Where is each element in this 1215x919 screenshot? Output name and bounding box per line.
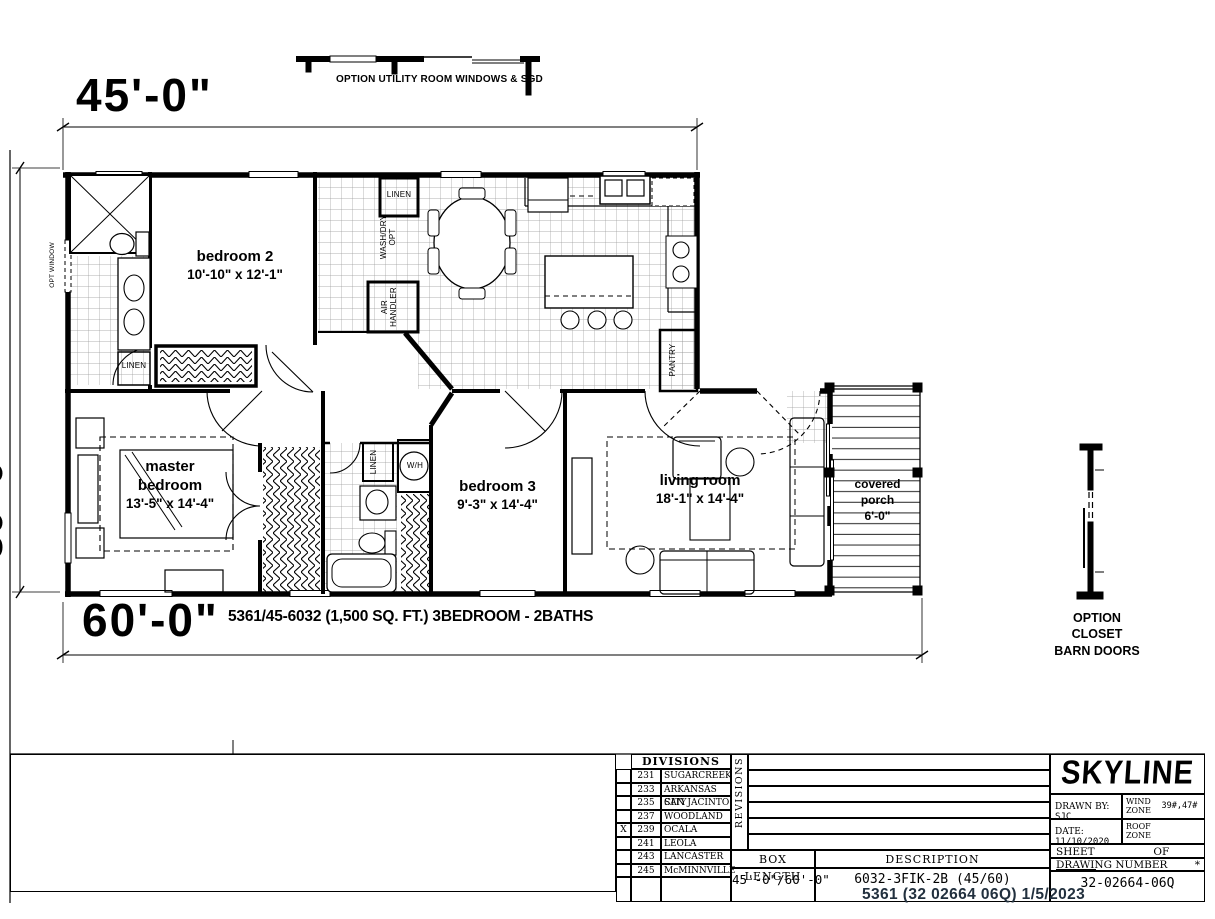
wind-zone-cell: WIND ZONE 39#,47# [1122,794,1205,819]
side-table [626,546,654,574]
division-name: OCALA [661,823,731,837]
dining-table [434,197,510,289]
sliding-door-pane [827,424,830,496]
drawn-by-cell: DRAWN BY: SJC [1050,794,1122,819]
bedroom3-door-arc [505,391,562,448]
porch-post [913,468,922,477]
dresser [165,570,223,592]
toilet-tank [136,232,149,256]
bedroom2-door-arc [266,345,313,392]
division-mark-empty [616,877,631,902]
brand-logo-cell: SKYLINE [1050,754,1205,794]
date-cell: DATE: 11/10/2020 [1050,819,1122,844]
division-name: WOODLAND [661,810,731,824]
vanity [118,258,150,350]
plan-title: 5361/45-6032 (1,500 SQ. FT.) 3BEDROOM - … [228,608,593,626]
dining-chair [505,248,516,274]
drawing-number-header: DRAWING NUMBER * [1050,858,1205,871]
stool [561,311,579,329]
dimension-60ft: 60'-0" [82,597,219,643]
stool [588,311,606,329]
porch-post [913,383,922,392]
division-mark [616,783,631,797]
divisions-header: DIVISIONS [631,754,731,769]
room-label-bedroom2: bedroom 2 10'-10" x 12'-1" [160,248,310,284]
division-name: McMINNVILLE [661,864,731,878]
division-code: 241 [631,837,661,851]
linen-label-hallbath: LINEN [370,422,386,502]
pantry-label: PANTRY [669,320,687,400]
description-header: DESCRIPTION [815,850,1050,868]
division-name: ARKANSAS CITY [661,783,731,797]
porch-post [913,586,922,595]
master-closet-hangers [263,447,320,592]
sink [124,309,144,335]
drawing-sheet: 45'-0" 60'-0" 5361/45-6032 (1,500 SQ. FT… [0,0,1215,919]
toilet [359,533,385,553]
dining-chair [459,188,485,199]
stool [614,311,632,329]
burner [627,180,644,196]
kitchen-island [545,256,633,308]
room-label-porch: covered porch 6'-0" [845,476,910,525]
division-mark [616,810,631,824]
bedroom3-closet-hangers [401,494,429,592]
porch-post [825,586,834,595]
division-code-empty [631,877,661,902]
division-code: 237 [631,810,661,824]
room-label-bedroom3: bedroom 3 9'-3" x 14'-4" [430,478,565,514]
toilet-tank [385,531,396,555]
bathtub-inner [332,559,391,587]
division-name: LEOLA [661,837,731,851]
opt-window-label: OPT WINDOW [49,225,63,305]
division-mark [616,864,631,878]
porch-post [825,468,834,477]
division-mark [616,769,631,783]
sink-bowl [673,266,689,282]
division-mark [616,796,631,810]
toilet [110,234,134,255]
linen-label-bath2: LINEN [118,362,150,371]
nightstand [76,418,104,448]
left-dimension-clipped: 30'-0" [0,440,36,615]
division-code: 235 [631,796,661,810]
room-label-master: master bedroom 13'-5" x 14'-4" [95,458,245,512]
revision-stamp: 5361 (32 02664 06Q) 1/5/2023 [862,886,1085,904]
sheet-of-cell: SHEET OF [1050,844,1205,858]
bedroom2-closet-hangers [160,350,252,382]
nightstand [76,528,104,558]
sink-bowl [673,242,689,258]
division-name: SAN JACINTO [661,796,731,810]
room-label-living: living room 18'-1" x 14'-4" [625,472,775,508]
division-mark [616,850,631,864]
division-name: SUGARCREEK [661,769,731,783]
division-name: LANCASTER [661,850,731,864]
box-length-value: 45'-0"/60'-0" [731,868,815,902]
refrigerator-dashed [652,178,694,206]
division-code: 233 [631,783,661,797]
dishwasher [528,178,568,212]
title-block-empty-cell [10,754,616,892]
division-name-empty [661,877,731,902]
sink [124,275,144,301]
dining-chair [428,210,439,236]
division-code: 243 [631,850,661,864]
air-handler-label: AIR HANDLER [381,267,405,347]
dining-chair [459,288,485,299]
roof-zone-cell: ROOF ZONE [1122,819,1205,844]
burner [605,180,622,196]
dining-chair [428,248,439,274]
option-utility-note: OPTION UTILITY ROOM WINDOWS & SGD [336,74,543,85]
division-code: 245 [631,864,661,878]
media-unit [572,458,592,554]
division-mark [616,837,631,851]
dimension-45ft: 45'-0" [76,72,213,118]
division-code: 239 [631,823,661,837]
porch-post [825,383,834,392]
revisions-label-cell: REVISIONS [731,754,748,850]
option-barn-door-detail [1077,444,1104,599]
water-heater-label: W/H [400,462,430,471]
option-closet-note: OPTION CLOSET BARN DOORS [1037,610,1157,659]
division-mark-checked: X [616,823,631,837]
wash-dry-label: WASH/DRY OPT [380,197,404,277]
skyline-logo: SKYLINE [1050,757,1205,790]
master-door-arc [207,391,262,446]
division-code: 231 [631,769,661,783]
dining-chair [505,210,516,236]
box-length-header: BOX LENGTH [731,850,815,868]
